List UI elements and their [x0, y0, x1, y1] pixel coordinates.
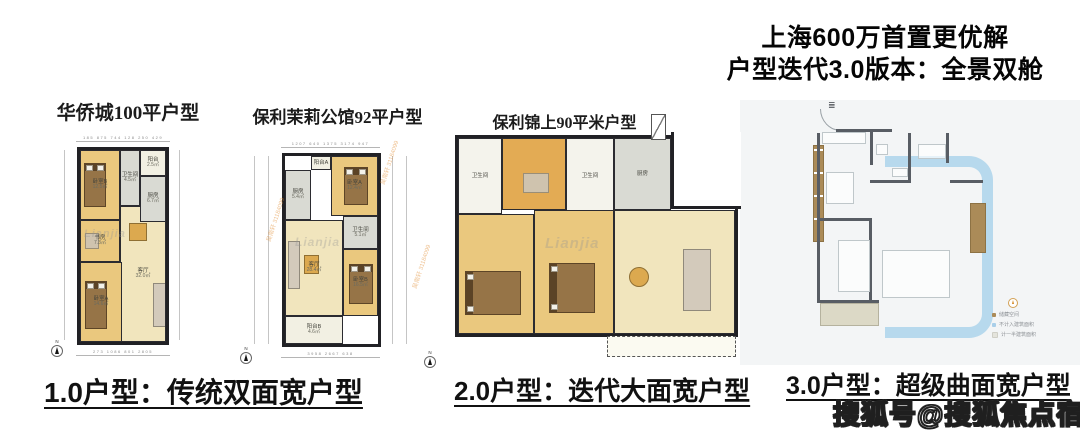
- room-label: 厨房: [637, 171, 648, 177]
- plan2-floorplan: 阳台A 卧室A 12.4㎡ 厨房 5.4㎡ 客厅 28.4㎡ 卫生间 5.1㎡ …: [282, 153, 381, 347]
- plan4-panel: ≣ 储藏空间: [740, 100, 1080, 365]
- room-balcony-a: 阳台A: [311, 156, 331, 170]
- room-bedroom-b: 卧室B 16.5㎡: [343, 249, 378, 316]
- wall-segment: [870, 180, 911, 183]
- legend-label: 计一半建筑面积: [1001, 331, 1036, 338]
- room-bathroom: 卫生间 4.5㎡: [120, 150, 140, 206]
- pillow: [359, 169, 366, 175]
- desk: [523, 173, 549, 193]
- legend-swatch-storage: [992, 313, 996, 317]
- wall-segment: [950, 180, 983, 183]
- sink: [892, 168, 908, 177]
- plan1-caption: 华侨城100平户型: [48, 98, 208, 125]
- caption-2-0: 2.0户型：迭代大面宽户型: [454, 371, 750, 408]
- sofa: [838, 240, 870, 292]
- pillow: [551, 266, 558, 272]
- room-living: [614, 210, 735, 334]
- bed: [882, 250, 950, 298]
- plan2-dims-bottom: 3958 2667 638: [281, 351, 380, 358]
- pillow: [364, 266, 371, 272]
- wall-segment: [870, 131, 873, 165]
- page: 上海600万首置更优解 户型迭代3.0版本：全景双舱 华侨城100平户型 185…: [0, 0, 1080, 432]
- pillow: [467, 274, 474, 280]
- plan2-dim-line-right2: [406, 156, 407, 344]
- legend-label: 不计入建筑面积: [999, 321, 1034, 328]
- pillow: [467, 306, 474, 312]
- site-watermark: 搜狐号@搜狐焦点宿州站: [833, 393, 1080, 432]
- dining-table: [129, 223, 147, 241]
- brand-watermark: Lianjia: [84, 228, 126, 240]
- legend-row: 储藏空间: [992, 311, 1036, 318]
- legend-north-icon: [1008, 298, 1018, 308]
- room-kitchen: 厨房: [614, 138, 671, 210]
- room-bathroom-2: 卫生间: [566, 138, 614, 214]
- pillow: [87, 283, 94, 289]
- building-notch: [671, 132, 741, 209]
- room-label: 卫生间: [472, 173, 489, 179]
- compass-needle: [51, 345, 63, 357]
- plan2-caption: 保利茉莉公馆92平户型: [250, 103, 425, 128]
- agent-watermark: 吴南轩 31184099: [410, 243, 433, 289]
- stairwell-box: [651, 114, 666, 140]
- compass-needle: [424, 356, 436, 368]
- plan2-dim-line-right: [392, 156, 393, 344]
- plan2-dims-top: 1207 640 1375 3174 947: [281, 141, 380, 148]
- room-area: 32.0㎡: [136, 274, 151, 280]
- room-bedroom-a: 卧室A 14.6㎡: [80, 262, 122, 342]
- room-kitchen: 厨房 6.7㎡: [140, 176, 166, 222]
- room-study: 书房 7.3㎡: [80, 220, 120, 262]
- room-bedroom-1: [458, 214, 534, 334]
- caption-1-0: 1.0户型：传统双面宽户型: [44, 371, 363, 411]
- north-compass-icon: N: [239, 347, 253, 364]
- room-area: 5.1㎡: [355, 233, 367, 239]
- room-area: 28.4㎡: [307, 268, 322, 274]
- wall-segment: [946, 133, 949, 163]
- room-label: 卫生间: [582, 173, 599, 179]
- room-bedroom-a: 卧室A 12.4㎡: [331, 156, 378, 216]
- plan1-floorplan: 客厅 32.0㎡ 卧室B 12.5㎡ 卫生间 4.5㎡ 阳台 2.5㎡ 厨房 6…: [77, 147, 169, 345]
- room-bedroom-b: 卧室B 12.5㎡: [80, 150, 120, 220]
- plan2-dim-line-left: [254, 156, 255, 344]
- pillow: [346, 169, 353, 175]
- plan1-dim-line-left: [64, 150, 65, 340]
- service-balcony: [820, 303, 879, 326]
- room-area: 7.3㎡: [94, 241, 106, 247]
- room-bathroom: 卫生间 5.1㎡: [343, 216, 378, 249]
- brand-watermark: Lianjia: [295, 235, 340, 249]
- desk: [918, 144, 946, 159]
- wall-segment: [817, 145, 820, 303]
- plan1-dim-line-right: [179, 150, 180, 340]
- legend-swatch-excluded-area: [992, 323, 996, 327]
- wall-segment: [817, 133, 820, 145]
- pillow: [86, 165, 93, 171]
- room-area: 12.4㎡: [347, 186, 362, 192]
- room-area: 4.6㎡: [308, 330, 320, 336]
- plan4-legend: 储藏空间 不计入建筑面积 计一半建筑面积: [992, 298, 1036, 338]
- legend-row: 计一半建筑面积: [992, 331, 1036, 338]
- plan3-caption: 保利锦上90平米户型: [482, 109, 647, 133]
- room-area: 14.6㎡: [94, 302, 109, 308]
- legend-row: 不计入建筑面积: [992, 321, 1036, 328]
- storage-block: [970, 203, 986, 253]
- compass-needle: [240, 352, 252, 364]
- room-balcony: 阳台 2.5㎡: [140, 150, 166, 176]
- room-area: 6.7㎡: [147, 199, 159, 205]
- pillow: [97, 165, 104, 171]
- plan1-dims-top: 185 875 744 128 250 429: [76, 135, 170, 142]
- room-balcony-b: 阳台B 4.6㎡: [285, 316, 343, 344]
- room-area: 4.5㎡: [124, 178, 136, 184]
- wall-segment: [820, 218, 872, 221]
- room-label: 阳台A: [314, 160, 329, 166]
- room-area: 5.4㎡: [292, 195, 304, 201]
- pillow: [351, 266, 358, 272]
- sofa: [683, 249, 711, 311]
- toilet: [876, 144, 888, 155]
- bed: [549, 263, 595, 313]
- north-compass-icon: N: [423, 351, 437, 368]
- dining-table: [629, 267, 649, 287]
- room-kitchen: 厨房 5.4㎡: [285, 170, 311, 220]
- north-compass-icon: N: [50, 340, 64, 357]
- pillow: [551, 304, 558, 310]
- room-bathroom-1: 卫生间: [458, 138, 502, 214]
- brand-watermark: Lianjia: [545, 235, 600, 252]
- legend-label: 储藏空间: [999, 311, 1019, 318]
- room-area: 2.5㎡: [147, 163, 159, 169]
- room-study: [502, 138, 566, 210]
- plan1-dims-bottom: 273 1086 801 2805: [76, 349, 170, 356]
- room-area: 12.5㎡: [93, 185, 108, 191]
- kitchen-counter: [822, 132, 866, 144]
- room-bedroom-2: [534, 210, 614, 334]
- balcony-dashed: [607, 336, 736, 357]
- pillow: [98, 283, 105, 289]
- room-living: 客厅 32.0㎡: [120, 206, 166, 342]
- legend-swatch-half-area: [992, 332, 998, 338]
- page-title: 上海600万首置更优解 户型迭代3.0版本：全景双舱: [690, 22, 1080, 86]
- room-area: 16.5㎡: [353, 283, 368, 289]
- bed: [465, 271, 521, 315]
- title-line-2: 户型迭代3.0版本：全景双舱: [690, 54, 1080, 86]
- door-arc: [820, 109, 841, 131]
- wall-segment: [908, 133, 911, 183]
- sofa: [153, 283, 166, 327]
- dining-table: [826, 172, 854, 204]
- title-line-1: 上海600万首置更优解: [690, 22, 1080, 54]
- plan2-dim-line-left2: [268, 156, 269, 344]
